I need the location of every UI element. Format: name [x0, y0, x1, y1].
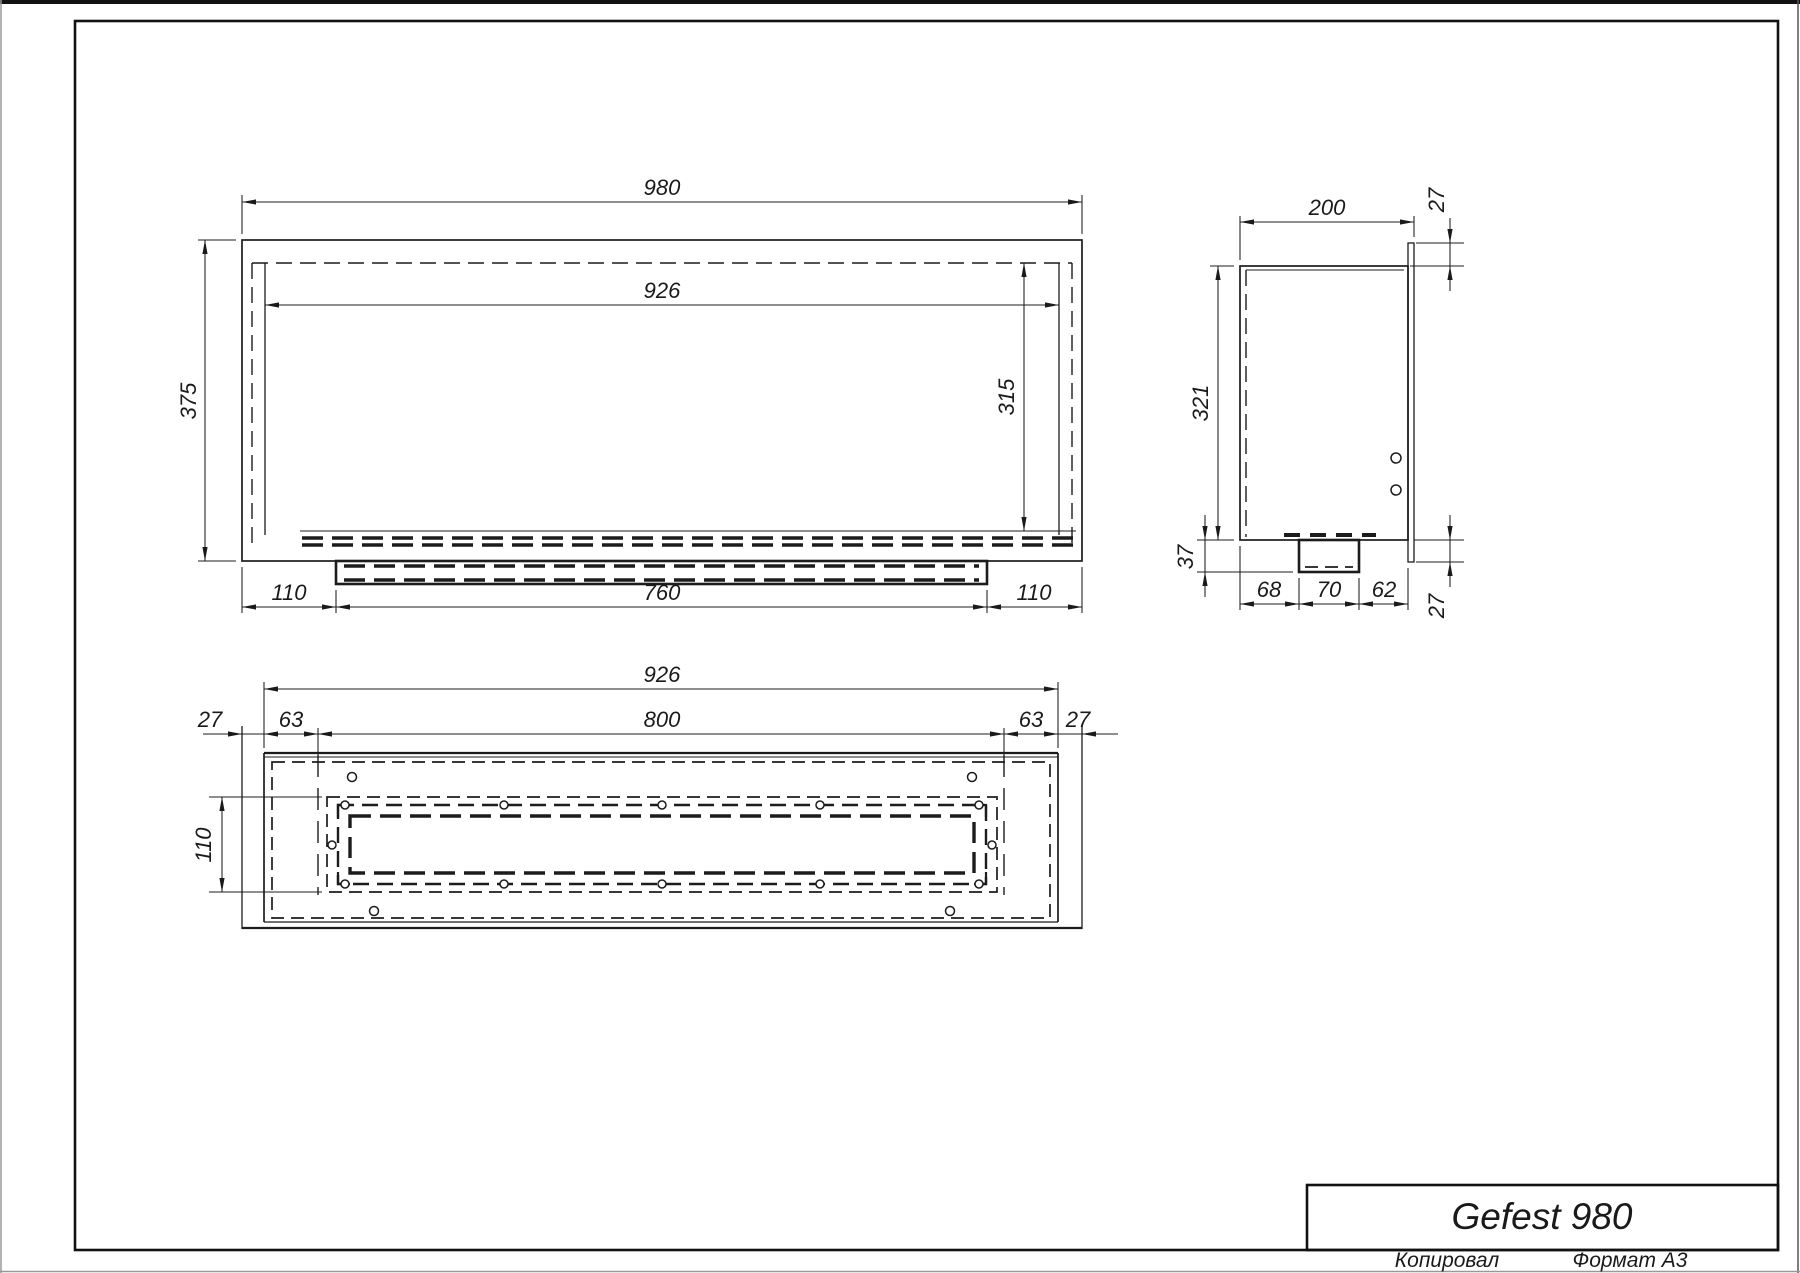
drawing-sheet: 980 926 375 315 110 760	[0, 0, 1800, 1273]
svg-text:62: 62	[1372, 577, 1396, 602]
dim-front-overall-width: 980	[242, 175, 1082, 234]
product-title: Gefest 980	[1451, 1196, 1632, 1237]
title-block: Gefest 980 Копировал Формат A3	[1307, 1185, 1778, 1272]
format-label: Формат A3	[1573, 1249, 1688, 1272]
side-hole-upper	[1391, 453, 1401, 463]
svg-text:68: 68	[1257, 577, 1282, 602]
dim-top-opening-width: 926	[264, 662, 1058, 748]
front-view: 980 926 375 315 110 760	[176, 175, 1082, 613]
svg-text:37: 37	[1173, 544, 1198, 569]
svg-text:63: 63	[279, 707, 304, 732]
svg-text:926: 926	[644, 278, 681, 303]
svg-text:315: 315	[994, 378, 1019, 415]
svg-text:27: 27	[1424, 187, 1449, 213]
dim-top-slot-depth: 110	[191, 797, 322, 892]
dim-side-bottom-row: 68 70 62	[1240, 546, 1408, 610]
svg-text:110: 110	[271, 580, 307, 605]
top-slot-inner	[350, 816, 974, 873]
svg-text:980: 980	[644, 175, 681, 200]
copied-label: Копировал	[1395, 1249, 1500, 1272]
dim-side-depth: 200	[1240, 195, 1414, 260]
svg-text:926: 926	[644, 662, 681, 687]
top-slot-outer	[327, 797, 997, 892]
svg-text:110: 110	[1016, 580, 1052, 605]
top-slot-holes	[328, 801, 996, 888]
side-view: 200 27 321 37	[1173, 187, 1464, 619]
svg-text:27: 27	[1065, 707, 1091, 732]
dim-front-opening-height: 315	[994, 263, 1024, 531]
top-inner-dashed-border	[272, 762, 1050, 918]
dim-side-flange-bottom: 27	[1414, 515, 1464, 619]
side-hole-lower	[1391, 485, 1401, 495]
svg-text:375: 375	[176, 382, 201, 419]
svg-text:110: 110	[191, 827, 216, 863]
drawing-frame	[75, 21, 1778, 1250]
dim-front-overall-height: 375	[176, 240, 236, 561]
svg-text:800: 800	[644, 707, 681, 732]
dim-side-flange-top: 27	[1410, 187, 1464, 291]
top-view: 926 27 63 800 63 27 110	[191, 662, 1118, 929]
svg-text:63: 63	[1019, 707, 1044, 732]
svg-text:321: 321	[1188, 385, 1213, 422]
dim-side-body-height: 321	[1188, 266, 1234, 540]
svg-text:760: 760	[644, 580, 681, 605]
dim-front-bottom-row: 110 760 110	[242, 567, 1082, 613]
drawing-canvas: 980 926 375 315 110 760	[0, 0, 1800, 1273]
svg-text:200: 200	[1308, 195, 1346, 220]
dim-front-opening-width: 926	[265, 278, 1059, 305]
side-body-outline	[1240, 266, 1408, 540]
dim-top-row: 27 63 800 63 27	[197, 707, 1118, 734]
svg-text:27: 27	[197, 707, 223, 732]
top-field-holes	[348, 773, 977, 916]
side-flange-plate	[1408, 243, 1414, 562]
page-edges	[0, 0, 1800, 1273]
svg-text:70: 70	[1317, 577, 1342, 602]
svg-text:27: 27	[1424, 593, 1449, 619]
